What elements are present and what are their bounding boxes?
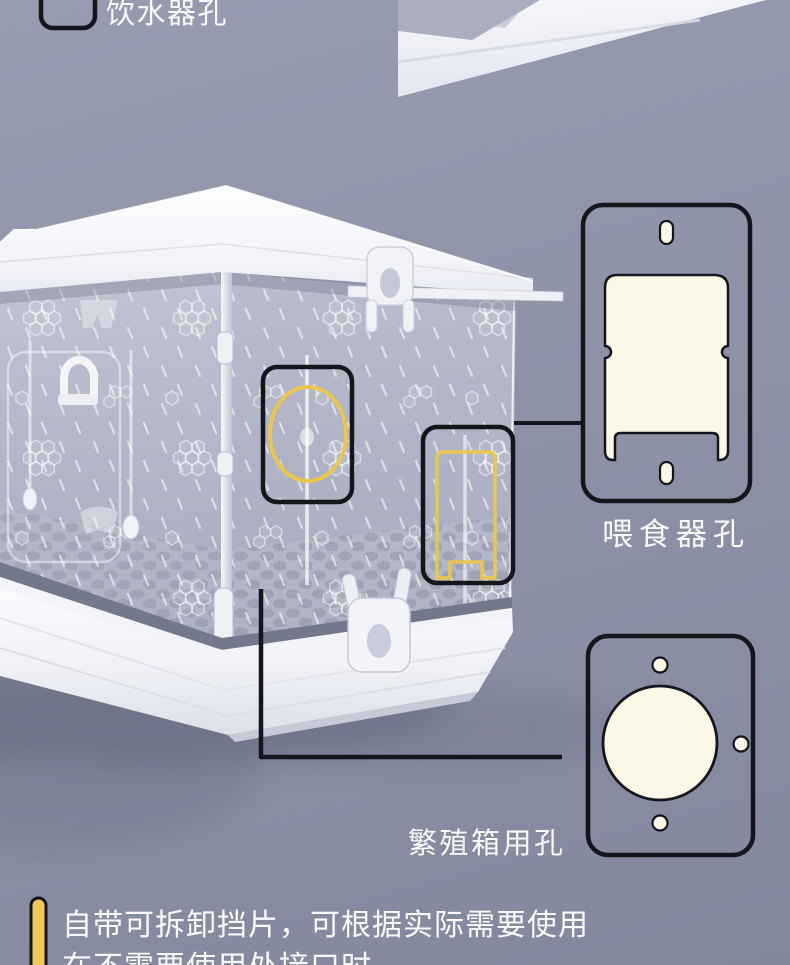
tube-valve (300, 428, 314, 446)
feeder-hole-label: 喂食器孔 (602, 517, 750, 552)
water-nozzle (23, 488, 37, 510)
top-right-product-fragment (398, 0, 766, 97)
inner-clip-silhouette (80, 507, 118, 536)
product-image-cage (0, 186, 563, 742)
note-accent-bar (31, 898, 46, 965)
breeding-screw-hole-top (653, 658, 668, 673)
scene: 喂食器孔 繁殖箱用孔 饮水器孔 自带可拆卸挡片，可根据实际需要使用 在不需要使用… (0, 0, 790, 965)
feeder-slot-top (660, 221, 673, 244)
breeding-main-hole (603, 686, 717, 800)
feeder-cutout-shape (605, 275, 728, 460)
breeding-hole-label: 繁殖箱用孔 (408, 827, 566, 860)
feeder-slot-bottom (660, 462, 673, 484)
water-hole-legend: 饮水器孔 (41, 0, 228, 30)
feeder-hole-diagram: 喂食器孔 (583, 205, 750, 552)
bottom-note: 自带可拆卸挡片，可根据实际需要使用 在不需要使用处接口时 (31, 898, 589, 965)
note-line-1: 自带可拆卸挡片，可根据实际需要使用 (62, 909, 589, 942)
breeding-screw-hole-right (734, 737, 749, 752)
water-nozzle (123, 515, 139, 539)
water-hole-legend-label: 饮水器孔 (106, 0, 228, 30)
legend-swatch-box (41, 0, 95, 28)
breeding-screw-hole-bottom (653, 816, 668, 831)
note-line-2: 在不需要使用处接口时 (62, 951, 372, 965)
product-detail-page: 喂食器孔 繁殖箱用孔 饮水器孔 自带可拆卸挡片，可根据实际需要使用 在不需要使用… (0, 0, 790, 965)
